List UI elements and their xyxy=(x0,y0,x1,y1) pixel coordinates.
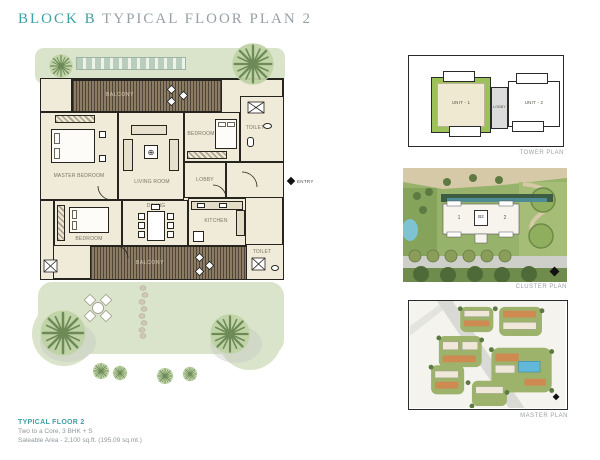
chair-icon xyxy=(151,204,160,210)
page-title-block: BLOCK B xyxy=(18,11,97,27)
center-table-icon: ⊕ xyxy=(144,145,158,159)
chair-icon xyxy=(138,213,145,220)
tower-lobby-label: LOBBY xyxy=(489,104,510,109)
sofa-icon xyxy=(131,125,167,135)
tower-plan-panel: UNIT - 1 LOBBY UNIT - 2 xyxy=(408,55,564,147)
cluster-unit2-label: 2 xyxy=(499,215,511,221)
lobby-label: LOBBY xyxy=(189,177,221,183)
footer-area-label: Saleable Area - 2,100 sq.ft. (195.09 sq.… xyxy=(18,437,142,444)
chair-icon xyxy=(138,231,145,238)
balcony-top-label: BALCONY xyxy=(90,92,150,98)
side-table-icon xyxy=(99,155,106,162)
shrub-icon xyxy=(157,368,173,384)
toilet-bottom-label: TOILET xyxy=(249,249,275,255)
tower-balcony xyxy=(449,126,481,137)
entrance-foyer xyxy=(226,162,284,198)
master-plan-panel xyxy=(408,300,568,410)
sink-icon xyxy=(197,203,205,208)
shrub-icon xyxy=(93,363,109,379)
bed-icon xyxy=(51,129,95,163)
lobby-room: LOBBY xyxy=(184,162,226,198)
tower-balcony xyxy=(512,121,544,132)
entry-label: ENTRY xyxy=(297,179,314,184)
toilet-top-label: TOILET xyxy=(245,125,265,131)
tower-unit1-label: UNIT - 1 xyxy=(439,100,483,105)
chair-icon xyxy=(167,231,174,238)
page-title-rest: TYPICAL FLOOR PLAN 2 xyxy=(102,11,312,27)
utility-room xyxy=(40,78,72,112)
shrub-icon xyxy=(113,366,127,380)
living-room: ⊕ LIVING ROOM xyxy=(118,112,184,200)
master-plan-caption: MASTER PLAN xyxy=(472,413,568,419)
master-plan-illustration xyxy=(409,301,566,408)
sofa-icon xyxy=(123,139,133,171)
cluster-plan-panel: 1 B2 2 xyxy=(403,168,567,282)
toilet-bottom-room: TOILET xyxy=(246,244,284,280)
shrub-icon xyxy=(51,321,65,335)
living-room-label: LIVING ROOM xyxy=(125,179,179,185)
passage xyxy=(40,200,54,280)
fridge-icon xyxy=(193,231,204,242)
side-table-icon xyxy=(99,131,106,138)
chair-icon xyxy=(167,213,174,220)
bedroom-top-room: BEDROOM xyxy=(184,112,240,162)
chair-icon xyxy=(138,222,145,229)
kitchen-counter xyxy=(236,210,245,236)
tower-unit2-label: UNIT - 2 xyxy=(512,100,556,105)
kitchen-room: KITCHEN xyxy=(188,198,246,246)
kitchen-label: KITCHEN xyxy=(199,218,233,224)
tower-balcony xyxy=(516,73,548,84)
cluster-plan-caption: CLUSTER PLAN xyxy=(471,284,567,290)
cluster-unit1-label: 1 xyxy=(453,215,465,221)
brochure-page: BLOCK B TYPICAL FLOOR PLAN 2 xyxy=(0,0,600,460)
wardrobe-icon xyxy=(55,115,95,123)
bed-icon xyxy=(69,207,109,233)
hob-icon xyxy=(219,203,227,208)
wc-icon xyxy=(247,137,254,147)
footer-config-label: Two to a Core, 3 BHK + S xyxy=(18,428,142,435)
page-title: BLOCK B TYPICAL FLOOR PLAN 2 xyxy=(18,11,312,28)
balcony-bottom-label: BALCONY xyxy=(120,260,180,266)
toilet-top-room: TOILET xyxy=(240,96,284,162)
bedroom-top-label: BEDROOM xyxy=(186,131,216,137)
master-bedroom-room: MASTER BEDROOM xyxy=(40,112,118,200)
sofa-icon xyxy=(169,139,179,171)
bedroom-bottom-room: BEDROOM xyxy=(54,200,122,246)
footer-floor-label: TYPICAL FLOOR 2 xyxy=(18,419,142,426)
wardrobe-icon xyxy=(57,205,65,241)
chair-icon xyxy=(167,222,174,229)
wardrobe-icon xyxy=(187,151,227,159)
shrub-icon xyxy=(183,367,197,381)
cluster-block-label: B2 xyxy=(474,210,488,226)
tower-unit1 xyxy=(431,77,491,133)
tower-plan-caption: TOWER PLAN xyxy=(468,150,564,156)
planter-row xyxy=(76,57,186,70)
dining-table-icon xyxy=(147,211,165,241)
tower-balcony xyxy=(443,71,475,82)
washbasin-icon xyxy=(271,265,279,271)
bedroom-bottom-label: BEDROOM xyxy=(69,236,109,242)
master-bedroom-label: MASTER BEDROOM xyxy=(51,173,107,179)
dining-room: DINING xyxy=(122,200,188,246)
bed-icon xyxy=(215,119,237,149)
footer-text: TYPICAL FLOOR 2 Two to a Core, 3 BHK + S… xyxy=(18,419,142,445)
